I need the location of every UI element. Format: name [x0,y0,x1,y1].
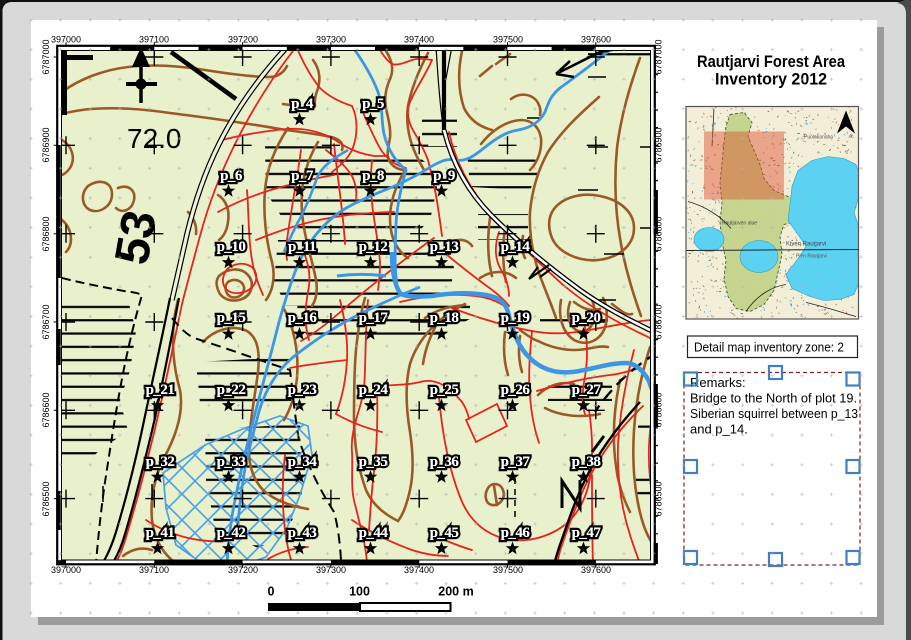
svg-text:p_22: p_22 [217,382,246,398]
svg-text:397600: 397600 [581,35,611,45]
svg-text:397500: 397500 [493,565,523,575]
svg-text:Siberian squirrel between p_13: Siberian squirrel between p_13 [690,406,858,421]
svg-text:p_24: p_24 [359,382,389,398]
svg-text:6786600: 6786600 [41,392,51,427]
svg-text:6786600: 6786600 [654,392,664,427]
svg-text:p_13: p_13 [430,239,459,255]
svg-text:Puolakanaho: Puolakanaho [804,135,833,141]
svg-text:Pien Rautjarvi: Pien Rautjarvi [796,254,827,260]
svg-text:p_43: p_43 [288,525,317,541]
svg-text:Detail map inventory zone: 2: Detail map inventory zone: 2 [694,340,844,355]
svg-text:200 m: 200 m [438,585,473,599]
svg-text:397100: 397100 [139,35,169,45]
svg-text:Kiven Rautjarvi: Kiven Rautjarvi [786,242,826,248]
svg-text:p_38: p_38 [572,454,601,470]
svg-text:6787000: 6787000 [654,39,664,74]
svg-text:6786800: 6786800 [41,216,51,251]
svg-text:Rautjarven alue: Rautjarven alue [722,221,757,227]
svg-text:p_4: p_4 [291,96,314,112]
svg-text:p_10: p_10 [217,239,246,255]
svg-text:p_41: p_41 [146,525,175,541]
svg-text:p_7: p_7 [291,168,314,184]
svg-text:Rautjarvi Forest Area: Rautjarvi Forest Area [697,53,846,71]
svg-text:p_27: p_27 [572,382,602,398]
svg-text:p_8: p_8 [362,168,384,184]
svg-text:p_11: p_11 [288,239,316,255]
svg-text:Remarks:: Remarks: [690,375,746,390]
svg-text:397500: 397500 [493,35,523,45]
svg-text:6786900: 6786900 [41,127,51,162]
svg-text:p_46: p_46 [501,525,531,541]
svg-text:p_21: p_21 [146,382,175,398]
svg-text:6786900: 6786900 [654,127,664,162]
svg-text:6786700: 6786700 [654,304,664,339]
svg-text:p_25: p_25 [430,382,459,398]
svg-text:397300: 397300 [316,565,346,575]
svg-text:397200: 397200 [228,565,258,575]
svg-text:p_20: p_20 [572,310,601,326]
svg-text:p_17: p_17 [359,310,389,326]
svg-text:p_44: p_44 [359,525,389,541]
svg-text:397000: 397000 [51,35,81,45]
svg-text:397400: 397400 [404,35,434,45]
svg-text:6787000: 6787000 [41,39,51,74]
svg-text:p_34: p_34 [288,454,318,470]
svg-text:p_15: p_15 [217,310,246,326]
svg-text:p_36: p_36 [430,454,460,470]
svg-text:p_5: p_5 [362,96,384,112]
svg-text:p_14: p_14 [501,239,531,255]
svg-text:p_12: p_12 [359,239,388,255]
svg-text:p_47: p_47 [572,525,602,541]
svg-text:p_45: p_45 [430,525,459,541]
svg-text:397200: 397200 [228,35,258,45]
svg-text:p_32: p_32 [146,454,175,470]
svg-text:6786500: 6786500 [654,481,664,516]
svg-text:397300: 397300 [316,35,346,45]
svg-text:p_26: p_26 [501,382,531,398]
svg-text:6786700: 6786700 [41,304,51,339]
svg-text:397000: 397000 [51,565,81,575]
svg-text:397400: 397400 [404,565,434,575]
svg-text:p_9: p_9 [433,168,455,184]
svg-text:p_16: p_16 [288,310,318,326]
svg-text:p_6: p_6 [220,168,243,184]
svg-text:100: 100 [349,585,370,599]
svg-text:Bridge to the North of plot 19: Bridge to the North of plot 19. [690,391,857,406]
svg-text:397100: 397100 [139,565,169,575]
svg-text:53: 53 [105,207,166,269]
svg-text:p_18: p_18 [430,310,459,326]
svg-text:6786800: 6786800 [654,216,664,251]
svg-text:p_23: p_23 [288,382,317,398]
svg-text:6786500: 6786500 [41,481,51,516]
svg-text:72.0: 72.0 [127,123,182,154]
svg-text:397600: 397600 [581,565,611,575]
svg-text:and p_14.: and p_14. [690,422,748,437]
svg-text:p_37: p_37 [501,454,531,470]
svg-text:p_42: p_42 [217,525,246,541]
svg-text:0: 0 [268,585,275,599]
svg-text:p_35: p_35 [359,454,388,470]
svg-text:p_33: p_33 [217,454,246,470]
